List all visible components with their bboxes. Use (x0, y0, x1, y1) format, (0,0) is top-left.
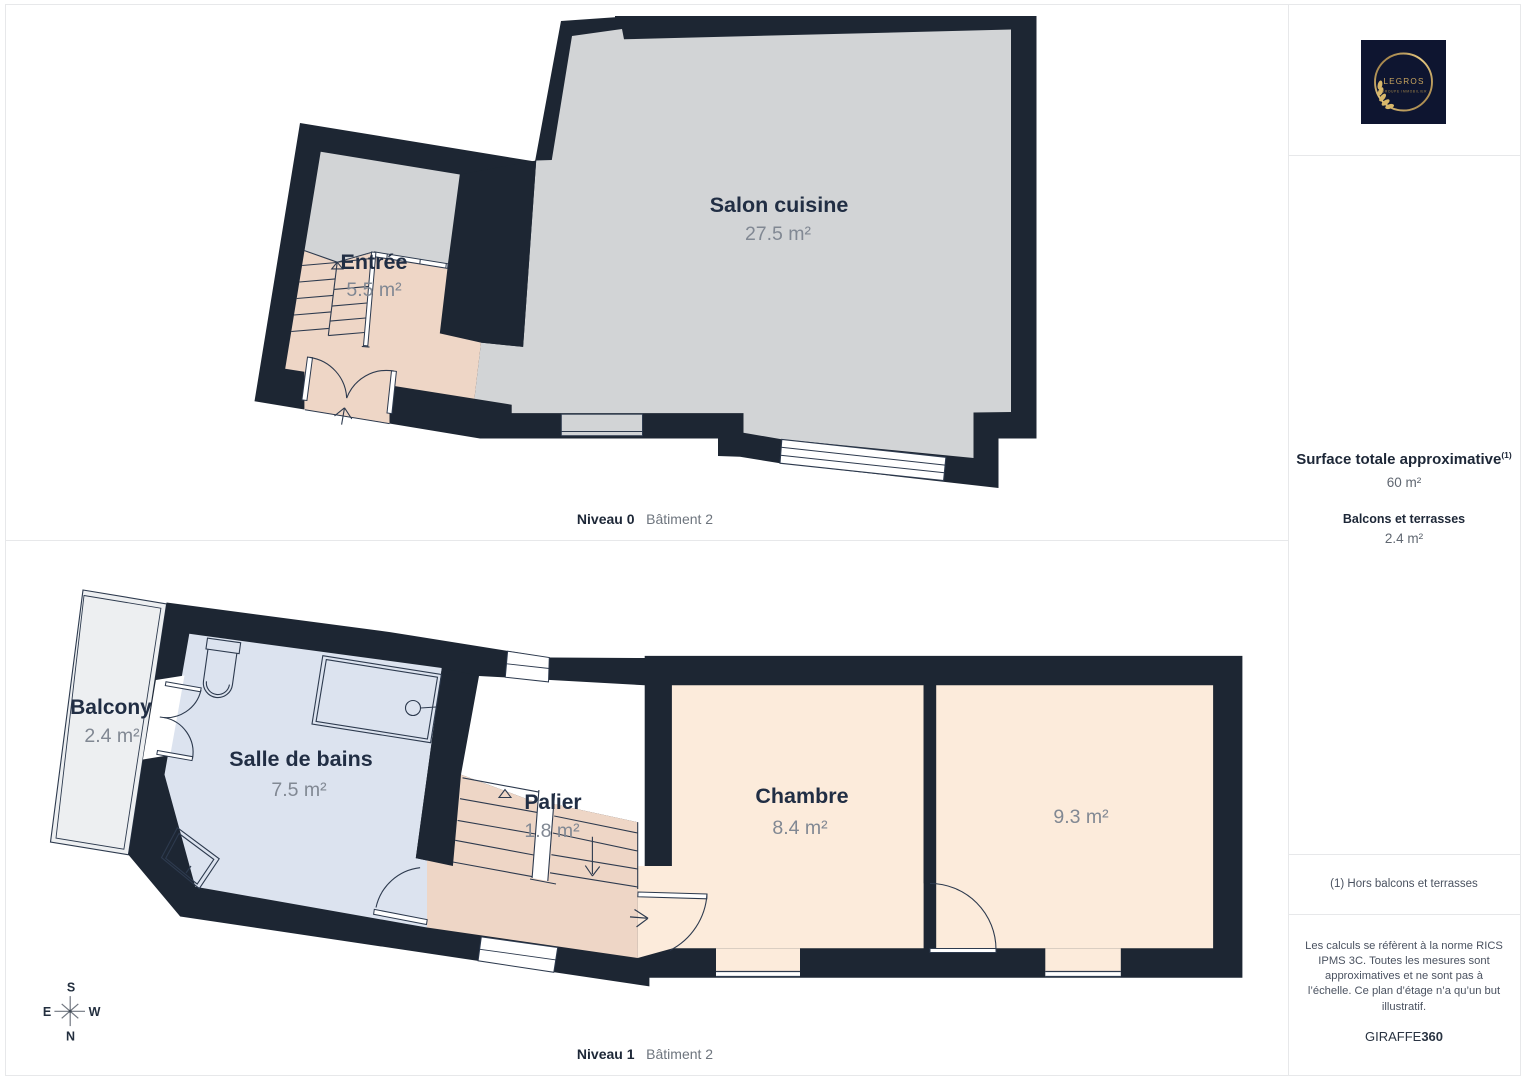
svg-text:Entrée: Entrée (341, 250, 408, 274)
svg-text:2.4 m²: 2.4 m² (84, 725, 140, 747)
svg-text:Balcony: Balcony (70, 696, 152, 719)
svg-text:7.5 m²: 7.5 m² (271, 779, 327, 801)
svg-text:1.8 m²: 1.8 m² (524, 820, 580, 842)
svg-text:Salon cuisine: Salon cuisine (710, 193, 849, 217)
svg-text:Salle de bains: Salle de bains (229, 747, 372, 771)
svg-text:W: W (89, 1005, 101, 1019)
svg-text:27.5 m²: 27.5 m² (745, 223, 812, 245)
svg-text:5.5 m²: 5.5 m² (346, 279, 402, 301)
svg-text:Palier: Palier (524, 791, 581, 814)
svg-text:9.3 m²: 9.3 m² (1053, 806, 1109, 828)
svg-text:GROUPE IMMOBILIER: GROUPE IMMOBILIER (1382, 90, 1427, 94)
svg-text:8.4 m²: 8.4 m² (772, 817, 828, 839)
svg-text:N: N (66, 1029, 75, 1043)
svg-text:LEGROS: LEGROS (1383, 77, 1424, 86)
svg-text:Chambre: Chambre (755, 784, 848, 808)
svg-text:S: S (67, 981, 75, 995)
svg-text:E: E (43, 1005, 51, 1019)
